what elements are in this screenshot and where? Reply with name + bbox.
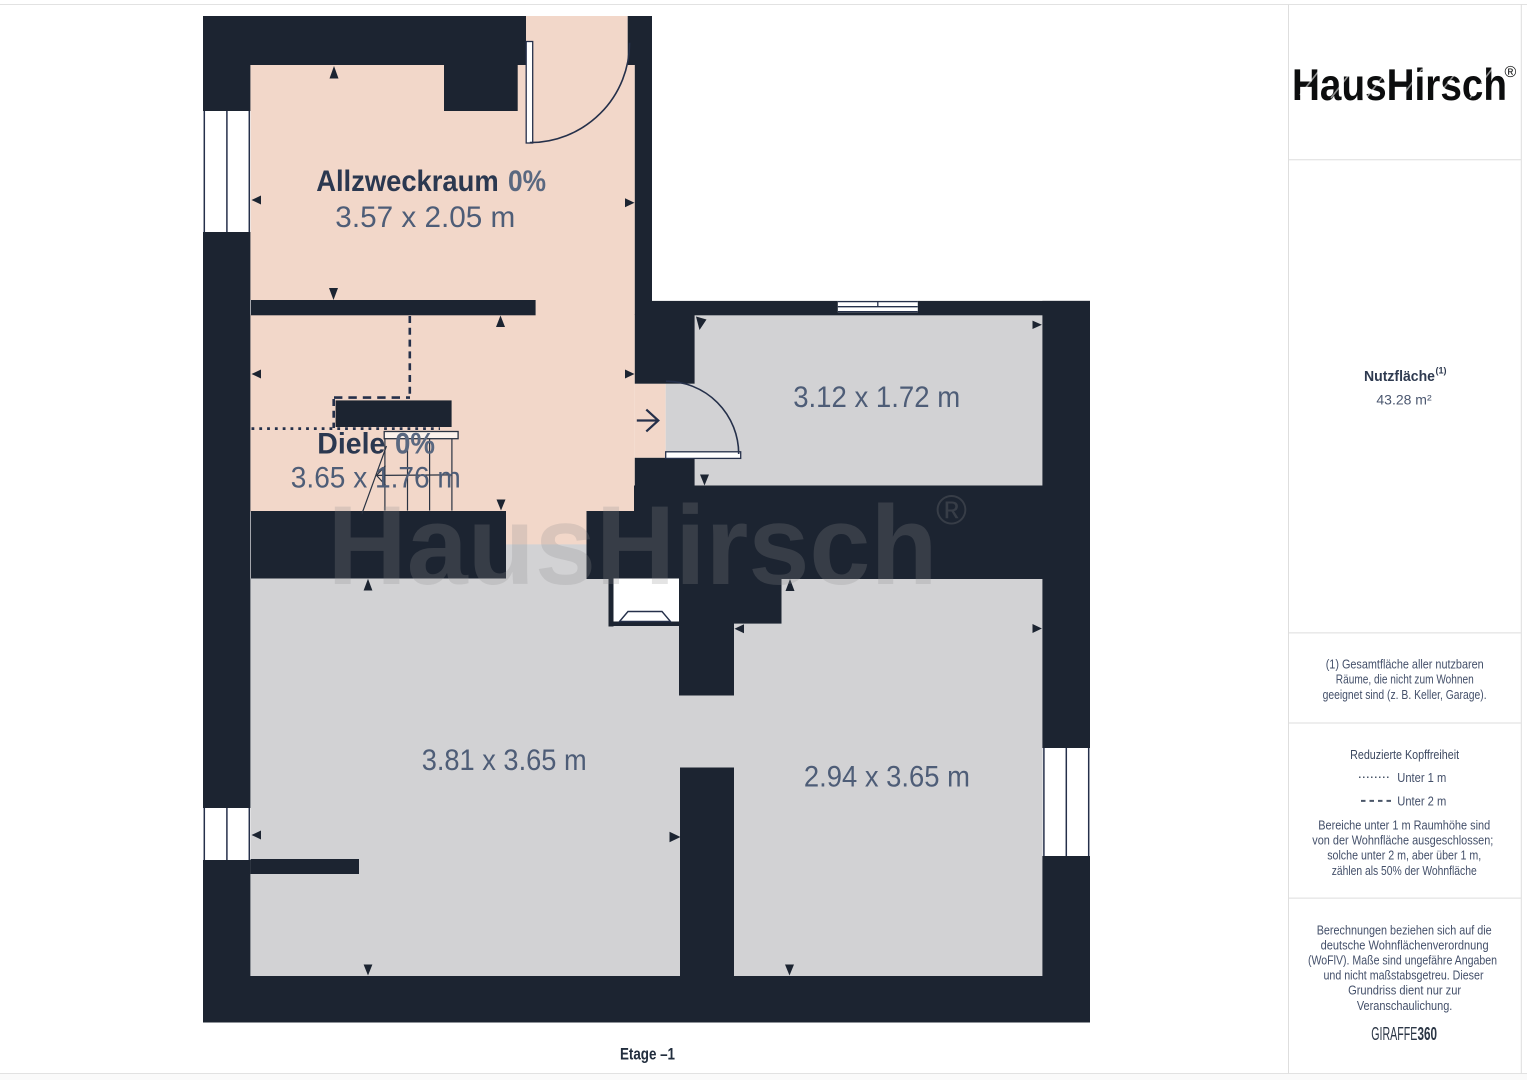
svg-text:von der Wohnfläche ausgeschlos: von der Wohnfläche ausgeschlossen; [1312,833,1493,848]
svg-text:zählen als 50% der Wohnfläche: zählen als 50% der Wohnfläche [1332,863,1477,878]
svg-text:®: ® [936,486,967,533]
svg-text:®: ® [1505,64,1517,81]
svg-text:geeignet sind (z. B. Keller, G: geeignet sind (z. B. Keller, Garage). [1323,687,1487,702]
svg-text:deutsche Wohnflächenverordnung: deutsche Wohnflächenverordnung [1321,937,1489,952]
svg-text:und nicht maßstabsgetreu. Dies: und nicht maßstabsgetreu. Dieser [1324,968,1484,983]
svg-text:HausHirsch: HausHirsch [328,483,938,608]
svg-text:(WoFlV). Maße sind ungefähre A: (WoFlV). Maße sind ungefähre Angaben [1308,953,1497,968]
svg-text:3.12 x 1.72 m: 3.12 x 1.72 m [793,381,960,414]
svg-text:Räume, die nicht zum Wohnen: Räume, die nicht zum Wohnen [1336,672,1474,687]
svg-text:Reduzierte Kopffreiheit: Reduzierte Kopffreiheit [1350,747,1459,762]
svg-text:Grundriss dient nur zur: Grundriss dient nur zur [1348,983,1462,998]
svg-text:Bereiche unter 1 m Raumhöhe si: Bereiche unter 1 m Raumhöhe sind [1318,817,1490,832]
svg-text:GIRAFFE: GIRAFFE [1371,1024,1417,1044]
svg-text:360: 360 [1418,1024,1438,1044]
svg-text:Etage –1: Etage –1 [620,1046,675,1064]
svg-text:Unter 2 m: Unter 2 m [1397,794,1446,809]
svg-text:Diele: Diele [317,428,385,461]
svg-text:Nutzfläche: Nutzfläche [1364,369,1435,385]
svg-text:43.28 m²: 43.28 m² [1376,392,1432,408]
svg-text:3.65 x 1.76 m: 3.65 x 1.76 m [291,462,461,495]
svg-text:solche unter 2 m, aber über 1: solche unter 2 m, aber über 1 m, [1327,848,1481,863]
svg-text:0%: 0% [508,165,546,198]
svg-text:Allzweckraum: Allzweckraum [316,165,499,198]
svg-text:2.94 x 3.65 m: 2.94 x 3.65 m [804,761,970,794]
svg-text:(1): (1) [1436,366,1447,376]
svg-text:(1) Gesamtfläche aller nutzbar: (1) Gesamtfläche aller nutzbaren [1326,657,1484,672]
svg-text:HausHirsch: HausHirsch [1292,61,1507,110]
svg-text:Unter 1 m: Unter 1 m [1397,770,1446,785]
svg-text:Berechnungen beziehen sich auf: Berechnungen beziehen sich auf die [1317,922,1492,937]
svg-text:Veranschaulichung.: Veranschaulichung. [1357,998,1453,1013]
svg-text:3.81 x 3.65 m: 3.81 x 3.65 m [422,744,587,777]
svg-text:0%: 0% [395,428,435,461]
svg-text:3.57 x 2.05 m: 3.57 x 2.05 m [335,201,515,234]
